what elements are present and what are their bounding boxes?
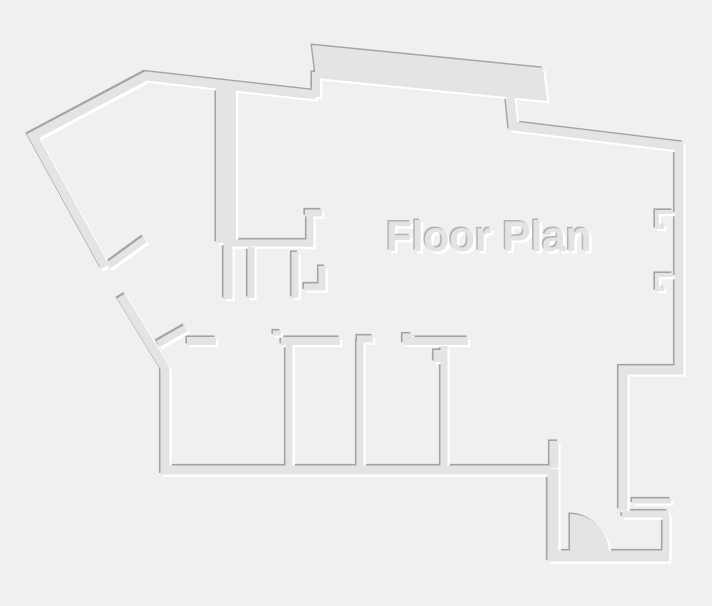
floor-plan-title: Floor Plan [386,216,591,259]
floor-plan-canvas [0,0,712,606]
floor-plan-page: { "title": { "text": "Floor Plan" }, "co… [0,0,712,606]
plan-layer-highlight [35,47,681,558]
